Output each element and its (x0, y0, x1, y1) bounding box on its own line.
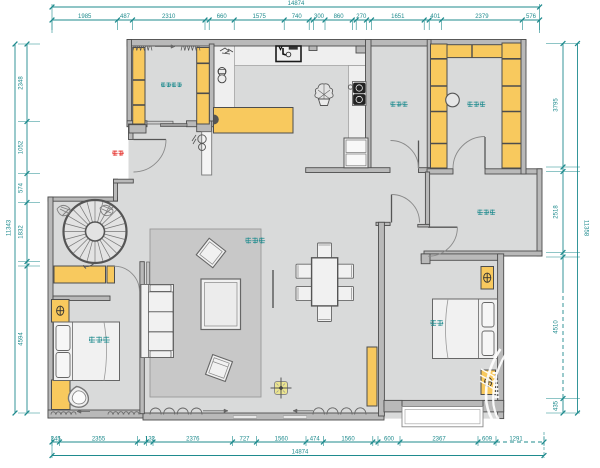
svg-text:2367: 2367 (432, 437, 446, 443)
svg-text:1651: 1651 (391, 14, 405, 20)
svg-text:660: 660 (217, 14, 228, 20)
svg-text:2376: 2376 (186, 437, 200, 443)
svg-text:1560: 1560 (275, 437, 289, 443)
svg-text:487: 487 (120, 14, 131, 20)
svg-text:2310: 2310 (162, 14, 176, 20)
svg-text:1985: 1985 (78, 14, 92, 20)
svg-text:2379: 2379 (475, 14, 489, 20)
svg-text:3795: 3795 (554, 98, 560, 112)
svg-text:401: 401 (430, 14, 441, 20)
svg-text:270: 270 (356, 14, 367, 20)
svg-text:600: 600 (384, 437, 395, 443)
svg-text:132: 132 (145, 437, 156, 443)
svg-text:609: 609 (482, 437, 493, 443)
svg-text:1832: 1832 (19, 225, 25, 239)
svg-text:4510: 4510 (554, 320, 560, 334)
svg-text:2518: 2518 (554, 205, 560, 219)
svg-text:11343: 11343 (7, 219, 13, 236)
svg-text:2355: 2355 (92, 437, 106, 443)
svg-text:1052: 1052 (19, 140, 25, 154)
svg-text:1291: 1291 (509, 437, 523, 443)
svg-text:245: 245 (51, 437, 62, 443)
svg-text:1575: 1575 (253, 14, 267, 20)
svg-text:474: 474 (310, 437, 321, 443)
svg-text:2348: 2348 (19, 76, 25, 90)
svg-text:14874: 14874 (288, 1, 305, 7)
svg-text:11358: 11358 (583, 220, 589, 237)
svg-text:300: 300 (314, 14, 325, 20)
svg-text:860: 860 (334, 14, 345, 20)
svg-text:4594: 4594 (19, 332, 25, 346)
svg-text:14874: 14874 (292, 450, 309, 456)
svg-text:727: 727 (239, 437, 250, 443)
svg-text:576: 576 (526, 14, 537, 20)
svg-text:1560: 1560 (341, 437, 355, 443)
svg-text:740: 740 (292, 14, 303, 20)
svg-text:435: 435 (554, 400, 560, 411)
svg-text:574: 574 (19, 182, 25, 193)
